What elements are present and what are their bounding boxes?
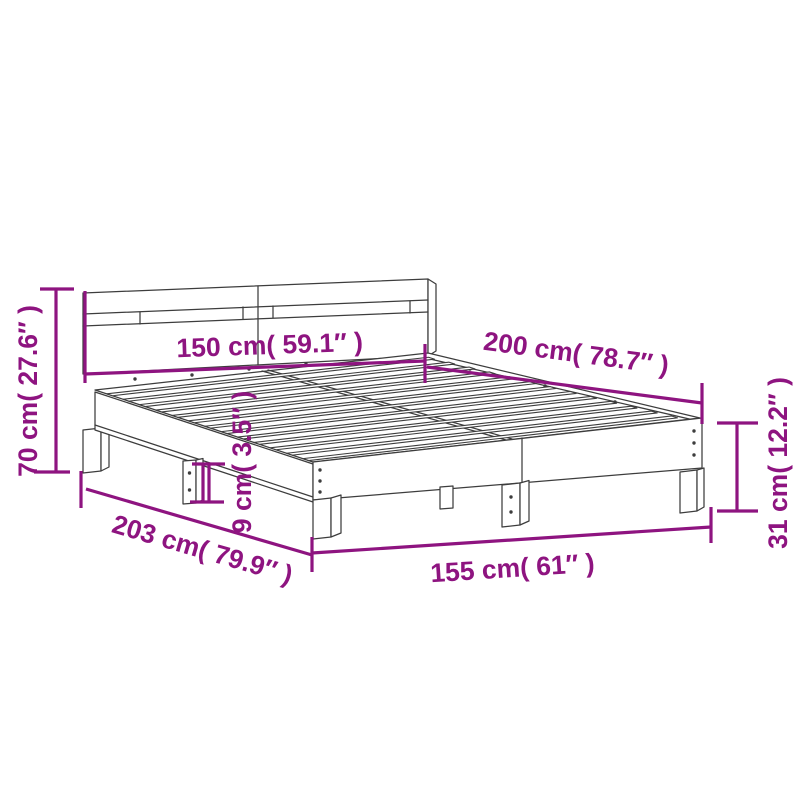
bed-drawing	[83, 279, 704, 539]
dim-70-label: 70 cm( 27.6″ )	[13, 305, 43, 477]
screw-hole-dot	[318, 479, 321, 482]
dim-155-line	[312, 527, 711, 553]
screw-hole-dot	[692, 429, 695, 432]
screw-hole-dot	[188, 471, 191, 474]
screw-hole-dot	[692, 441, 695, 444]
headboard-leg-front	[83, 428, 101, 473]
screw-hole-dot	[692, 453, 695, 456]
bed-frame-dimension-diagram: 150 cm( 59.1″ ) 200 cm( 78.7″ ) 70 cm( 2…	[0, 0, 800, 800]
center-support-leg	[440, 486, 453, 509]
dimension-70: 70 cm( 27.6″ )	[13, 289, 74, 477]
screw-hole-dot	[318, 468, 321, 471]
foot-leg-left-side	[331, 495, 341, 537]
foot-leg-middle-front	[502, 483, 520, 527]
screw-hole-dot	[133, 377, 136, 380]
screw-hole-dot	[318, 490, 321, 493]
screw-hole-dot	[190, 373, 193, 376]
headboard-side-edge	[428, 279, 436, 356]
screw-hole-dot	[188, 488, 191, 491]
foot-leg-right-front	[680, 470, 697, 513]
screw-hole-dot	[509, 510, 512, 513]
dimension-31: 31 cm( 12.2″ )	[717, 377, 793, 549]
foot-leg-middle-side	[520, 481, 529, 526]
dim-9-label: 9 cm( 3.5″ )	[227, 391, 257, 533]
diagram-canvas: 150 cm( 59.1″ ) 200 cm( 78.7″ ) 70 cm( 2…	[0, 0, 800, 800]
left-rail-leg-front	[183, 460, 196, 504]
foot-leg-left-front	[313, 498, 331, 539]
dim-203-label: 203 cm( 79.9″ )	[109, 509, 296, 590]
foot-leg-right-side	[697, 468, 704, 511]
screw-hole-dot	[509, 495, 512, 498]
dim-31-label: 31 cm( 12.2″ )	[763, 377, 793, 549]
dim-155-label: 155 cm( 61″ )	[429, 548, 595, 589]
